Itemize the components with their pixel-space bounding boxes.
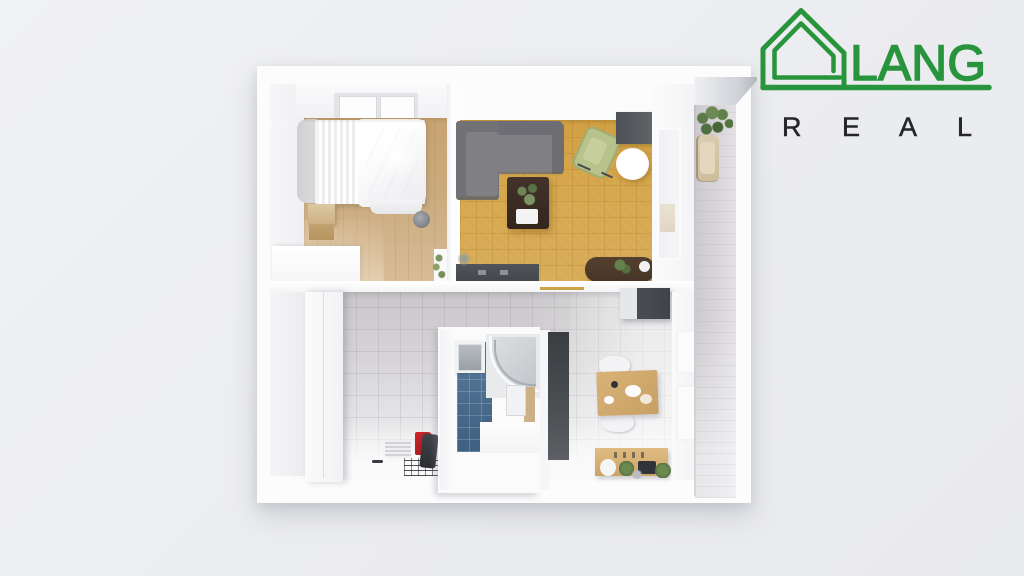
svg-text:L: L: [957, 112, 972, 142]
svg-text:E: E: [842, 112, 860, 142]
svg-text:A: A: [899, 112, 917, 142]
svg-text:R: R: [782, 112, 802, 142]
svg-text:LANG: LANG: [850, 35, 986, 91]
